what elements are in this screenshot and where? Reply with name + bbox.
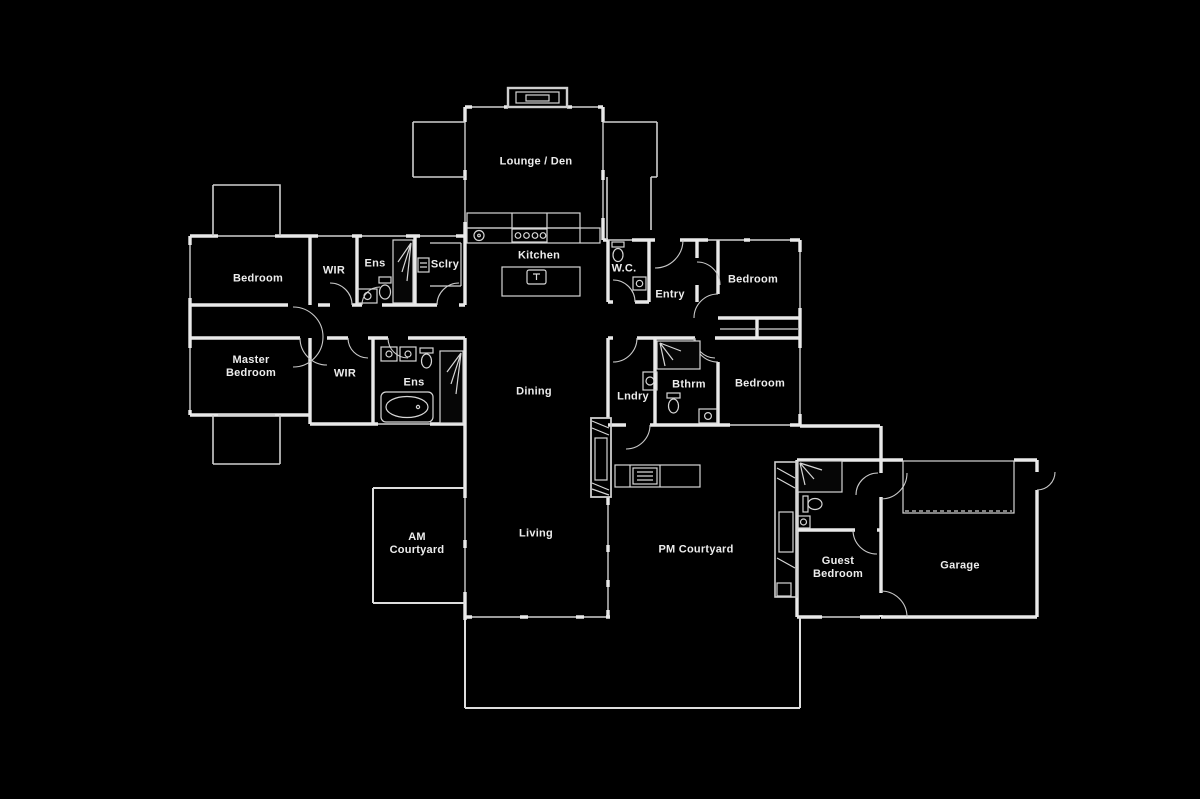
island-sink-icon <box>527 270 546 284</box>
pm-courtyard-wall <box>465 617 800 708</box>
guest-shower-icon <box>798 461 842 492</box>
ensuite1-vanity-icon <box>358 289 377 303</box>
guest-toilet-icon <box>803 496 822 512</box>
guest-basin-icon <box>797 516 810 528</box>
bbq-icon <box>615 465 700 487</box>
scullery-appliance-icon <box>418 258 429 272</box>
windows <box>190 107 860 617</box>
kitchen-sink-icon <box>474 231 484 241</box>
living-fireplace-icon <box>591 418 611 497</box>
ensuite2-vanity-icon <box>381 347 416 361</box>
fixtures <box>358 88 1014 597</box>
bathroom-toilet-icon <box>667 393 680 413</box>
outdoor-fireplace-icon <box>775 462 797 597</box>
bathtub-icon <box>381 392 433 422</box>
floor-plan: Lounge / DenKitchenBedroomWIREnsSclryW.C… <box>0 0 1200 799</box>
garage-door-bay <box>903 461 1014 513</box>
wc-basin-icon <box>633 277 646 290</box>
front-door-arc <box>655 240 683 268</box>
bathroom-vanity-icon <box>699 409 717 423</box>
door-arc <box>856 473 878 495</box>
kitchen-island <box>502 267 580 296</box>
ensuite1-shower-icon <box>393 240 413 303</box>
fireplace-icon <box>508 88 567 107</box>
door-arc <box>1037 472 1055 490</box>
door-arc <box>626 425 650 449</box>
door-arc <box>293 337 323 367</box>
stove-icon <box>512 229 547 242</box>
door-arc <box>853 530 877 554</box>
bathroom-shower-icon <box>657 341 700 369</box>
scullery-counter <box>430 243 461 286</box>
door-arc <box>613 338 637 362</box>
door-arc <box>881 591 907 617</box>
door-arc <box>330 283 352 305</box>
am-courtyard-wall <box>373 488 465 603</box>
door-arc <box>348 338 368 358</box>
ensuite2-shower-icon <box>440 351 463 423</box>
door-arc <box>293 307 323 337</box>
door-arc <box>613 280 635 302</box>
ensuite2-toilet-icon <box>420 348 433 368</box>
ensuite1-toilet-icon <box>379 277 391 299</box>
floor-plan-drawing <box>0 0 1200 799</box>
wc-toilet-icon <box>612 242 624 262</box>
